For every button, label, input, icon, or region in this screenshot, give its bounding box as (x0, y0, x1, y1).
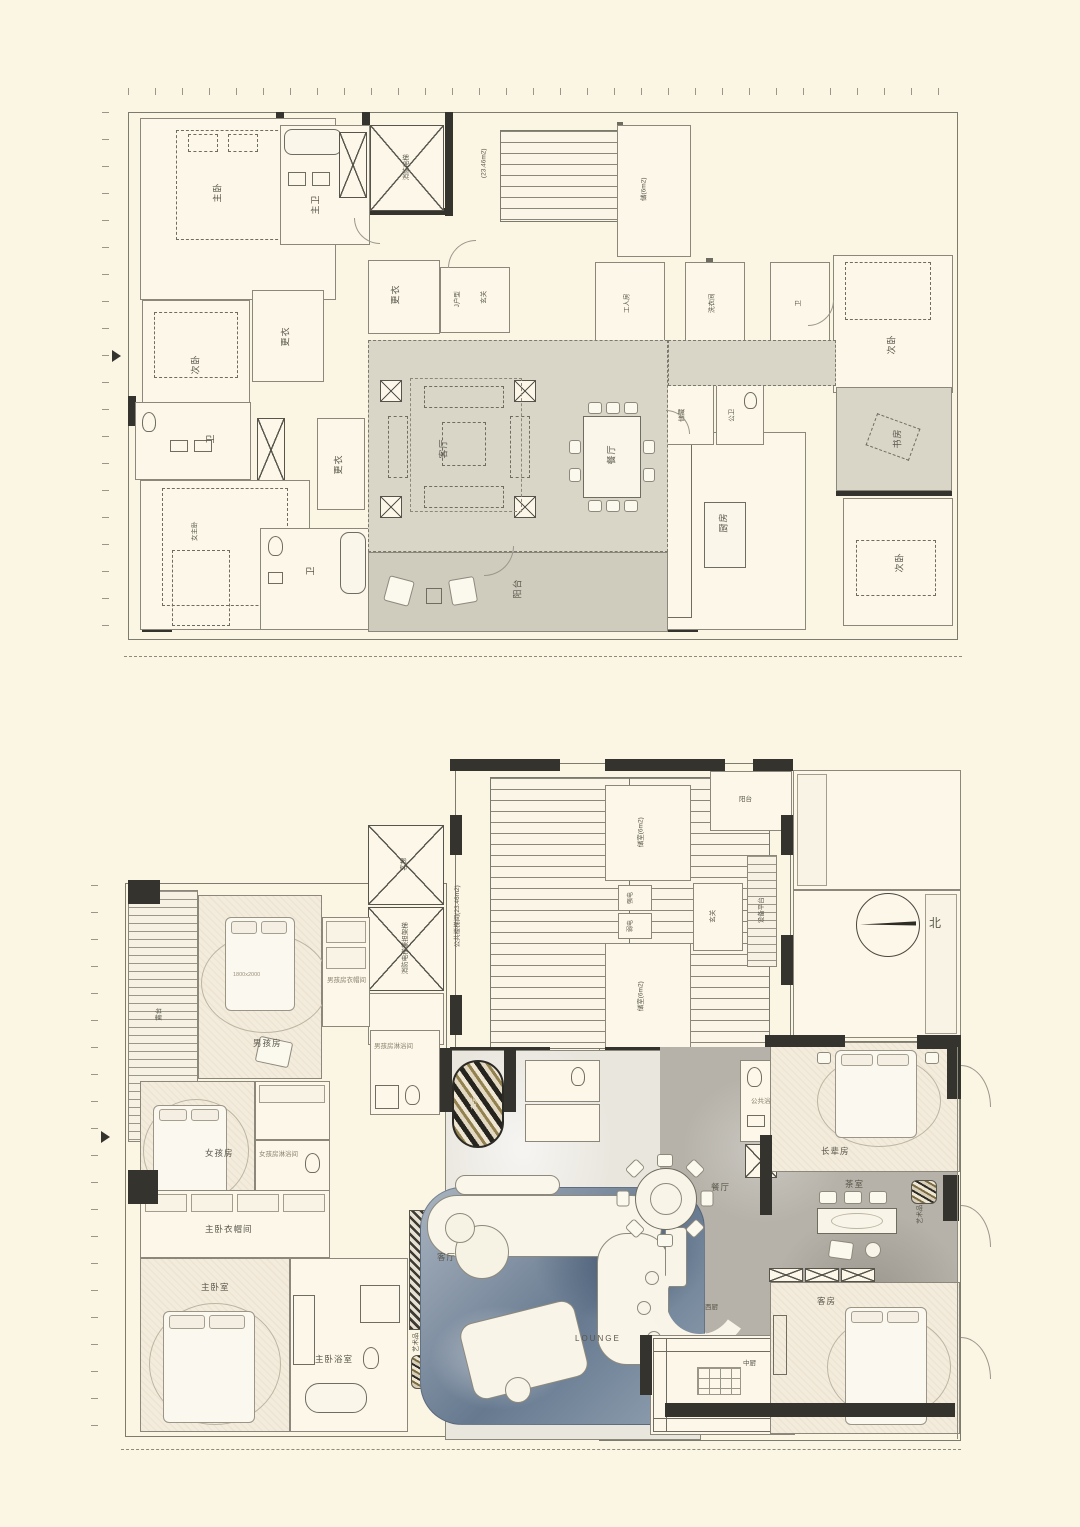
room-label: 女孩房淋浴间 (259, 1151, 303, 1159)
chair (657, 1234, 673, 1247)
wall (128, 880, 160, 904)
room-label: 设备平台 (759, 897, 766, 923)
toilet (405, 1085, 420, 1105)
toilet (571, 1067, 585, 1086)
toilet (363, 1347, 379, 1369)
closet-shelf (259, 1085, 325, 1103)
room-label: 储室(6m2) (639, 817, 646, 847)
room-label: 主卫 (312, 194, 321, 214)
chair (569, 440, 581, 454)
bed-size-label: 1800x2000 (233, 973, 260, 979)
wall (640, 1335, 652, 1395)
shaft (339, 132, 367, 198)
wall (504, 1048, 516, 1112)
sink (268, 572, 283, 584)
shutter-arc (961, 1065, 991, 1107)
vanity (293, 1295, 315, 1365)
pillow (188, 134, 218, 152)
room-label: 公卫 (729, 409, 736, 422)
room-label: 长辈房 (821, 1147, 850, 1156)
unit-type-label: J户型 (455, 291, 462, 307)
dimension-ticks-left (102, 112, 109, 640)
chair (588, 402, 602, 414)
wall (917, 1035, 961, 1049)
art-label: 艺术品 (918, 1205, 925, 1225)
room-label: 主卧衣帽间 (205, 1225, 253, 1234)
elevator-label: 客梯 (401, 858, 408, 871)
room-dressing-top (368, 260, 440, 334)
wardrobe (797, 774, 827, 886)
pillow (228, 134, 258, 152)
room-label: 次卧 (896, 552, 905, 572)
room-label: 女孩房 (205, 1149, 234, 1158)
room-label: 储(6m2) (641, 178, 648, 201)
chair (701, 1191, 714, 1207)
lounge-label: LOUNGE (575, 1335, 621, 1343)
room-store-b (605, 943, 691, 1051)
room-label: 次卧 (192, 354, 201, 374)
kitchen-island (697, 1367, 741, 1395)
dimension-ticks-top (128, 88, 958, 95)
closet-shelf (283, 1194, 325, 1212)
floor-plan-sheet: { "page": { "background": "#fbf5e4" }, "… (0, 0, 1080, 1527)
level-marker-icon (112, 350, 121, 362)
room-label: 中厨 (743, 1361, 756, 1368)
stool (505, 1377, 531, 1403)
wall (765, 1035, 845, 1047)
console (510, 416, 530, 478)
room-label: 次卧 (888, 334, 897, 354)
chair (869, 1191, 887, 1204)
wall (128, 1170, 158, 1204)
room-label: 客房 (817, 1297, 836, 1306)
dining-table-inner (650, 1183, 682, 1215)
sink (170, 440, 188, 452)
side-table (426, 588, 442, 604)
room-public-bath (716, 385, 764, 445)
elevator-label: 消防电梯兼担架梯 (403, 922, 410, 974)
closet-shelf (191, 1194, 233, 1212)
room-label: 工人房 (625, 294, 632, 314)
pillow (851, 1311, 883, 1323)
chair (643, 468, 655, 482)
room-label: 男孩房 (253, 1039, 282, 1048)
shutter-arc (961, 1337, 991, 1379)
weak-electric-shaft (618, 913, 652, 939)
core-foyer (693, 883, 743, 951)
stool (865, 1242, 881, 1258)
bar-stool (645, 1271, 659, 1285)
room-label: 主卧 (214, 182, 223, 202)
pillow (191, 1109, 219, 1121)
sofa (424, 486, 504, 508)
room-label: 卫 (307, 565, 316, 575)
wall (440, 1048, 452, 1112)
wall (605, 759, 725, 771)
room-label: 茶室 (845, 1180, 864, 1189)
chair (617, 1191, 630, 1207)
cabinet (841, 1268, 875, 1282)
chair (569, 468, 581, 482)
elevator-label: 消防电梯 (404, 154, 411, 180)
closet-shelf (326, 947, 366, 969)
room-label: 卫 (207, 433, 216, 443)
stair-area-label: (23.46m2) (482, 148, 489, 178)
room-label: 男孩房衣帽间 (327, 977, 367, 985)
room-label: 露台 (156, 1008, 163, 1021)
room-label: 书房 (894, 428, 903, 448)
room-label: 主卧浴室 (315, 1355, 353, 1364)
room-label: 阳台 (739, 797, 752, 804)
facade-line (957, 1047, 958, 1439)
wall (450, 815, 462, 855)
wall (947, 1049, 961, 1099)
kitchen-counter (666, 438, 692, 618)
wall (450, 995, 462, 1035)
room-label: 储室(6m2) (639, 981, 646, 1011)
pillow (209, 1315, 245, 1329)
corridor-zone (668, 340, 836, 386)
dimension-ticks-left (91, 885, 98, 1435)
chair (606, 402, 620, 414)
wall (753, 759, 793, 771)
sofa (424, 386, 504, 408)
closet-shelf (326, 921, 366, 943)
nightstand (925, 1052, 939, 1064)
stair-label: 公共楼梯间(23.46m2) (455, 885, 462, 947)
pillow (877, 1054, 909, 1066)
design-floor-plan: 公共楼梯间(23.46m2) 客梯 消防电梯兼担架梯 储室(6m2) 储室(6m… (105, 755, 985, 1475)
sculpture-icon (911, 1180, 937, 1204)
room-label: 客厅 (437, 1253, 456, 1262)
bar-stool (637, 1301, 651, 1315)
nightstand (817, 1052, 831, 1064)
room-label: 玄关 (481, 291, 488, 304)
side-table (445, 1213, 475, 1243)
cabinet (769, 1268, 803, 1282)
sink (312, 172, 330, 186)
pillow (887, 1311, 919, 1323)
chair (624, 500, 638, 512)
chair (606, 500, 620, 512)
bathtub (284, 129, 342, 155)
armchair (828, 1239, 854, 1260)
coffee-table (442, 422, 486, 466)
tea-table-top (831, 1213, 883, 1229)
toilet (744, 392, 757, 409)
room-label: 女主卧 (193, 522, 200, 542)
bed (172, 550, 230, 626)
column (380, 380, 402, 402)
pillow (261, 921, 287, 934)
pillow (159, 1109, 187, 1121)
room-label: 阳台 (514, 578, 523, 598)
chair (844, 1191, 862, 1204)
toilet (747, 1067, 762, 1087)
wall (450, 759, 560, 771)
console (773, 1315, 787, 1375)
wall (760, 1135, 772, 1215)
toilet (305, 1153, 320, 1173)
shaft-label: 弱电 (628, 920, 634, 932)
cabinet (805, 1268, 839, 1282)
pillow (841, 1054, 873, 1066)
wall (445, 112, 453, 216)
room-label: 洗衣间 (710, 294, 717, 314)
room-label: 更衣 (282, 326, 291, 346)
room-label: 厨房 (720, 512, 729, 532)
room-store-a (605, 785, 691, 881)
wall (781, 815, 793, 855)
bathtub (305, 1383, 367, 1413)
storage-room (525, 1104, 600, 1142)
column (380, 496, 402, 518)
room-label: 更衣 (392, 284, 401, 304)
service-elevator-shaft (257, 418, 285, 482)
strong-electric-shaft (618, 885, 652, 911)
original-floor-plan: 主卧 主卫 消防电梯 (23.46m2) 储(6m2) 更衣 J户型 玄关 工人… (118, 100, 968, 690)
shower (375, 1085, 399, 1109)
shower (360, 1285, 400, 1323)
room-label: 玄关 (710, 910, 717, 923)
wardrobe (925, 894, 957, 1034)
foundation-line (124, 656, 962, 657)
shaft-label: 强电 (628, 892, 634, 904)
room-label: 卫 (796, 300, 803, 307)
toilet (142, 412, 156, 432)
room-label: 玄关 (471, 1097, 478, 1110)
sofa-console (455, 1175, 560, 1195)
level-marker-icon (101, 1131, 110, 1143)
chair (643, 440, 655, 454)
powder-room (525, 1060, 600, 1102)
room-label: 主卧室 (201, 1283, 230, 1292)
bed (845, 262, 931, 320)
closet-shelf (237, 1194, 279, 1212)
pillow (231, 921, 257, 934)
pillow (169, 1315, 205, 1329)
wall (665, 1403, 955, 1417)
chair (657, 1154, 673, 1167)
shutter-arc (961, 1205, 991, 1247)
foundation-line (121, 1449, 961, 1450)
wall (781, 935, 793, 985)
bathtub (340, 532, 366, 594)
entry-rug (452, 1060, 504, 1148)
sink (747, 1115, 765, 1127)
console (388, 416, 408, 478)
chair (624, 402, 638, 414)
chair (588, 500, 602, 512)
entry-corridor (440, 267, 510, 333)
chair (819, 1191, 837, 1204)
toilet (268, 536, 283, 556)
room-label: 西厨 (705, 1305, 718, 1312)
room-label: 餐厅 (608, 444, 617, 464)
room-store-6m2 (617, 125, 691, 257)
north-label: 北 (929, 917, 942, 929)
stairwell (500, 130, 626, 222)
room-label: 男孩房淋浴间 (374, 1043, 434, 1051)
room-label: 餐厅 (711, 1183, 730, 1192)
sink (288, 172, 306, 186)
room-label: 客厅 (440, 438, 449, 458)
room-label: 更衣 (335, 454, 344, 474)
lounge-chair (448, 576, 478, 606)
